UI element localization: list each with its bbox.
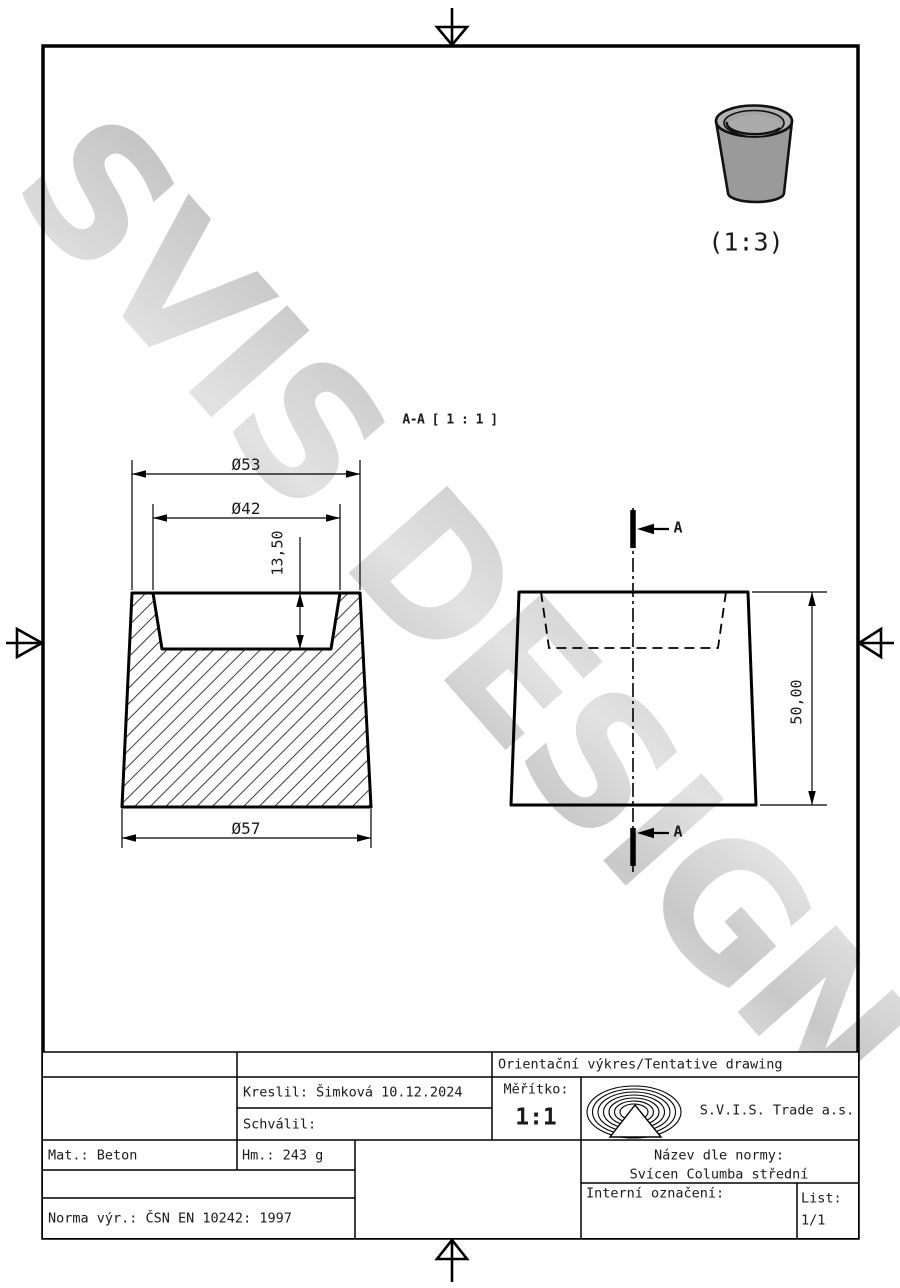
drawn-by-field: Kreslil: Šimková 10.12.2024 [243,1086,462,1100]
approved-by-field: Schválil: [243,1118,316,1132]
mass-field: Hm.: 243 g [242,1149,323,1163]
centering-mark-bottom-icon [437,1239,467,1282]
internal-designation-label: Interní označení: [586,1187,724,1201]
sheet-number: 1/1 [801,1214,825,1228]
dim-dia-bottom: Ø57 [232,821,261,837]
scale-label: Měřítko: [503,1083,568,1097]
cut-label-top: A [673,521,682,536]
scale-value: 1:1 [515,1107,557,1130]
preview-scale-label: (1:3) [708,230,783,255]
dim-height: 50,00 [790,679,805,724]
centering-mark-left-icon [6,629,43,657]
cut-label-bottom: A [673,825,682,840]
dim-dia-inner: Ø42 [232,501,261,517]
dim-dia-top: Ø53 [232,457,261,473]
production-standard-field: Norma výr.: ČSN EN 10242: 1997 [48,1212,292,1226]
drawing-sheet: SVIS DESIGN [0,0,900,1288]
dim-depth: 13,50 [271,530,286,575]
material-field: Mat.: Beton [48,1149,137,1163]
centering-mark-top-icon [437,8,467,46]
section-label: A-A [ 1 : 1 ] [402,414,497,427]
section-view [122,593,371,807]
part-name: Svícen Columba střední [630,1168,809,1182]
part-3d-preview [716,106,792,203]
standard-name-label: Název dle normy: [654,1149,784,1163]
tentative-drawing-label: Orientační výkres/Tentative drawing [498,1058,782,1072]
company-name: S.V.I.S. Trade a.s. [700,1104,854,1118]
centering-mark-right-icon [858,629,894,657]
sheet-label: List: [801,1192,842,1206]
